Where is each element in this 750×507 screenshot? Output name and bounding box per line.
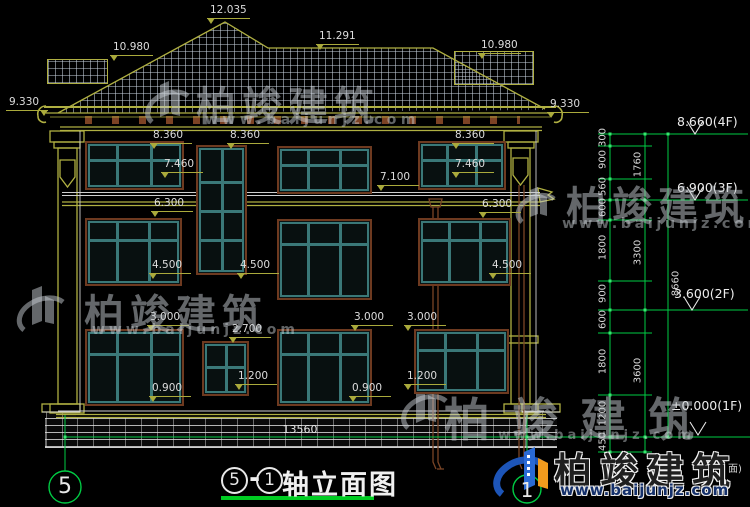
- dim-label: 7.100: [377, 172, 419, 186]
- chain-dim: 1800: [598, 228, 609, 268]
- dim-label: 1.200: [404, 371, 446, 385]
- floor-marker-4f: 8.660(4F): [677, 114, 738, 129]
- dim-label: 8.360: [452, 130, 494, 144]
- window: [418, 218, 511, 286]
- dim-label: 4.500: [237, 260, 279, 274]
- footer-logo-url: www.baijunjz.com: [560, 481, 729, 499]
- dim-label: 1.200: [235, 371, 277, 385]
- chain-dim: 600: [598, 300, 609, 340]
- chain-dim: 1800: [598, 342, 609, 382]
- cad-elevation-drawing: 12.035 10.980 11.291 10.980 9.330 9.330 …: [0, 0, 750, 507]
- title-axis-start: 5: [221, 467, 248, 494]
- dim-label: 8.360: [227, 130, 269, 144]
- window: [277, 146, 372, 194]
- window: [277, 219, 372, 300]
- dim-label: 6.300: [479, 199, 521, 213]
- drawing-title: 轴立面图: [282, 463, 398, 502]
- chain-dim: 8660: [671, 264, 682, 304]
- dim-label: 7.460: [161, 159, 203, 173]
- dim-label: 9.330: [547, 99, 589, 113]
- chain-dim: 600: [598, 188, 609, 228]
- dim-label: 12.035: [207, 5, 250, 19]
- title-axis-end: 1: [256, 467, 283, 494]
- dim-label: 6.300: [151, 198, 193, 212]
- dim-label: 4.500: [489, 260, 531, 274]
- dim-label: 3.000: [404, 312, 446, 326]
- dim-label: 7.460: [452, 159, 494, 173]
- chain-dim: 3300: [633, 233, 644, 273]
- dim-label: 9.330: [6, 97, 48, 111]
- dim-label: 11.291: [316, 31, 359, 45]
- dim-label: 2.700: [229, 324, 271, 338]
- dim-label: 3.000: [147, 312, 189, 326]
- floor-marker-1f: ±0.000(1F): [671, 398, 742, 413]
- floor-marker-2f: 3.600(2F): [674, 286, 735, 301]
- dim-label: 4.500: [149, 260, 191, 274]
- window: [85, 218, 182, 286]
- dim-label: 8.360: [150, 130, 192, 144]
- overall-width-dim: 13560: [270, 423, 330, 436]
- chain-dim: 1760: [633, 145, 644, 185]
- axis-bubble-5: 5: [54, 474, 76, 499]
- stair-window-tall: [196, 145, 247, 275]
- dim-label: 10.980: [478, 40, 521, 54]
- dim-label: 0.900: [149, 383, 191, 397]
- axis-bubble-1: 1: [519, 478, 535, 502]
- chain-dim: 3600: [633, 351, 644, 391]
- floor-marker-3f: 6.900(3F): [677, 180, 738, 195]
- dim-label: 3.000: [351, 312, 393, 326]
- dim-label: 0.900: [349, 383, 391, 397]
- dim-label: 10.980: [110, 42, 153, 56]
